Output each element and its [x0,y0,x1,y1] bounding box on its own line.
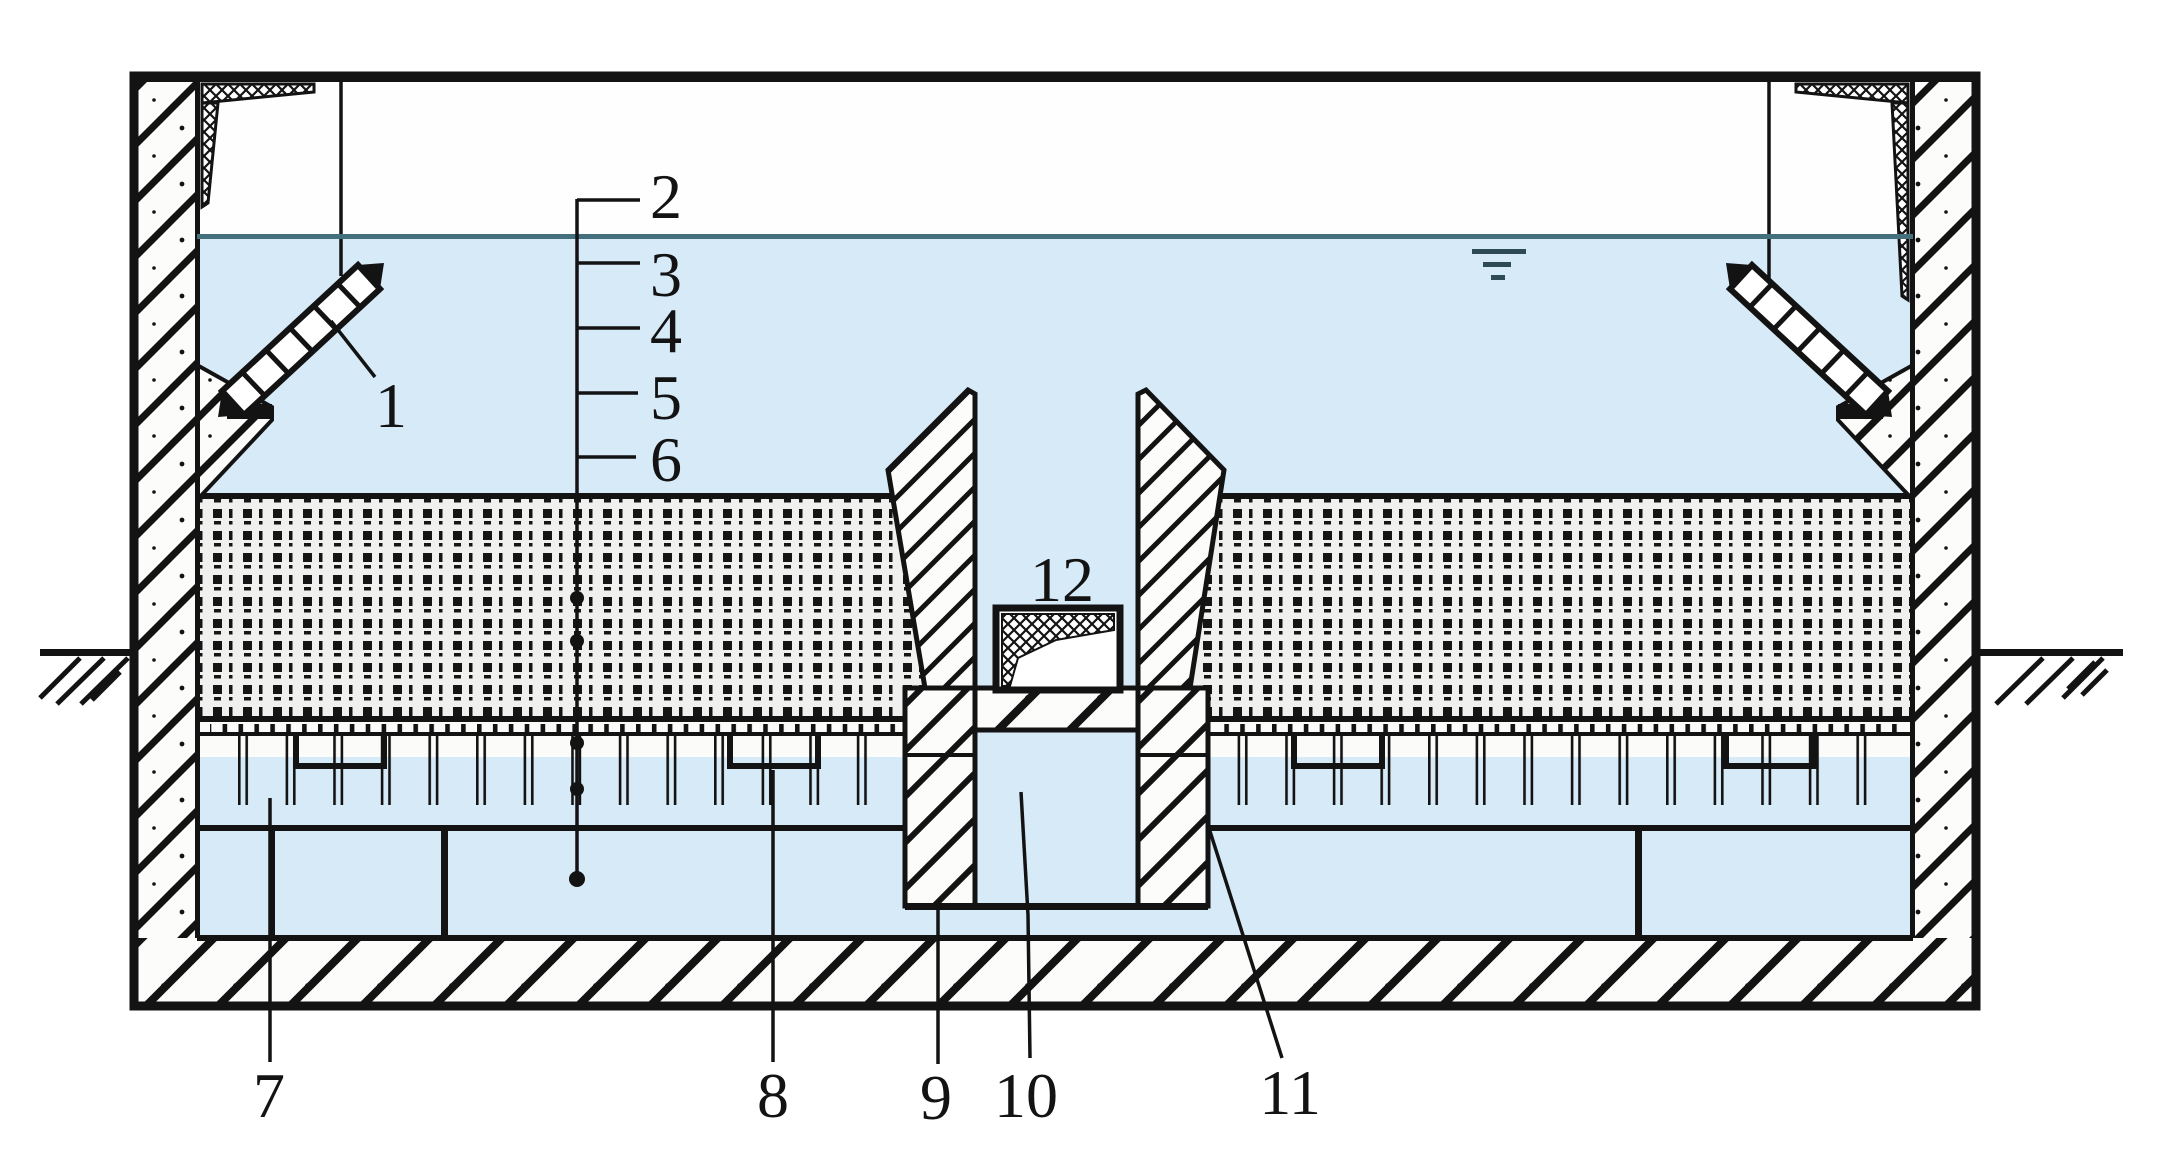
channel-bottom-line [905,903,1208,910]
water-level-line [197,234,1913,239]
tank-wall-left [137,82,197,938]
patent-figure-svg: 1 2 3 4 5 6 7 8 9 10 11 12 [0,0,2174,1150]
freeboard-air-space [197,82,1913,238]
tank-wall-right [1913,82,1973,938]
callout-1: 1 [375,370,407,441]
callout-9: 9 [920,1062,952,1133]
nozzle-stems-right [1221,735,1898,805]
tank-bottom-slab [137,938,1973,1003]
callout-11: 11 [1259,1057,1321,1128]
callout-6: 6 [650,424,682,495]
pier-left [905,688,975,906]
nozzle-stems-left [213,735,890,805]
gallery-divider [1635,828,1642,940]
gullet-slab [975,688,1138,730]
callout-7: 7 [253,1060,285,1131]
callout-4: 4 [650,295,682,366]
callout-2: 2 [650,161,682,232]
callout-5: 5 [650,362,682,433]
callout-12: 12 [1030,544,1094,615]
gallery-divider [441,828,448,940]
callout-10: 10 [994,1060,1058,1131]
filter-media-right [1185,498,1910,718]
patent-figure-canvas: 1 2 3 4 5 6 7 8 9 10 11 12 [0,0,2174,1150]
pier-right [1138,688,1208,906]
central-trough-12 [996,608,1120,690]
filter-media-left [200,498,960,718]
callout-8: 8 [757,1060,789,1131]
